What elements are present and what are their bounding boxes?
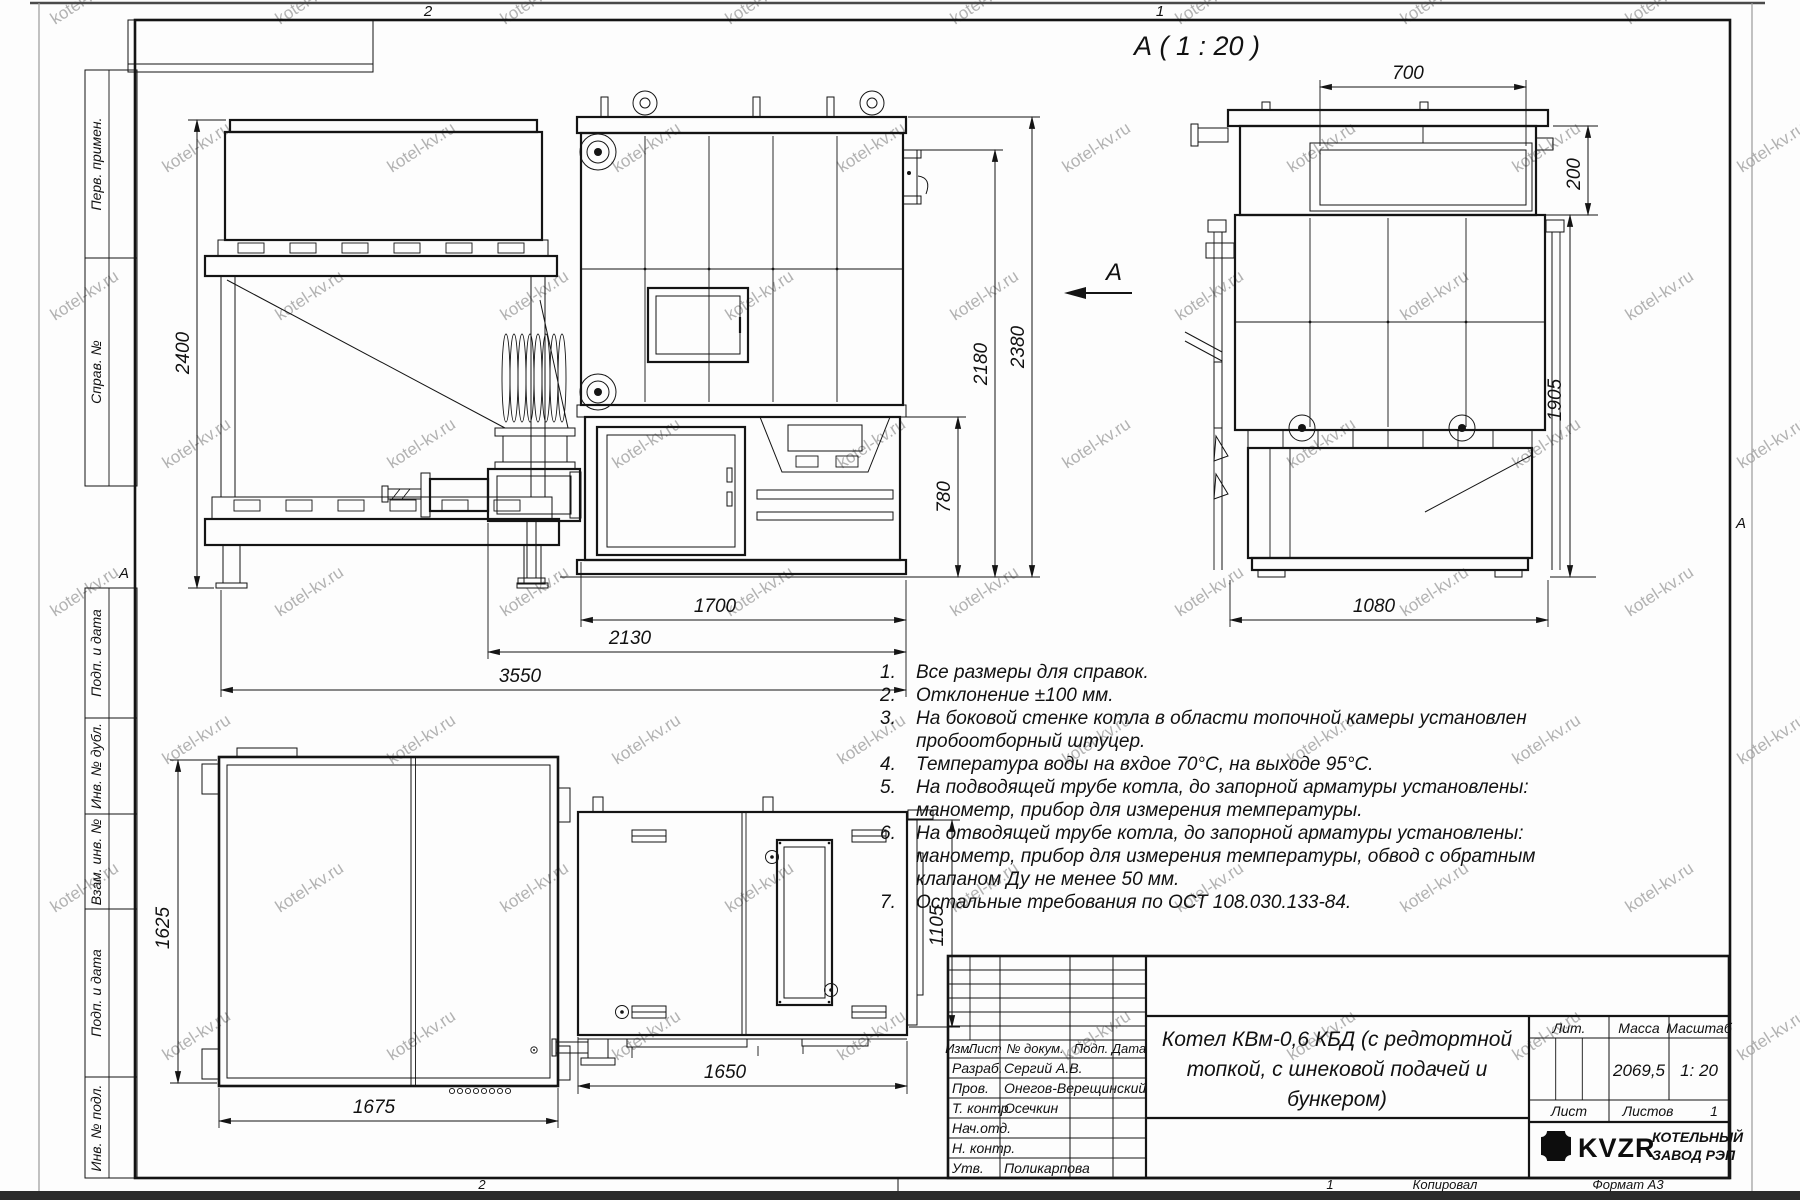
watermark	[1734, 118, 1800, 176]
zone-top-right: 1	[1156, 3, 1164, 20]
dim-700: 700	[1392, 63, 1424, 84]
tb-doc-title-line2: топкой, с шнековой подачей и	[1187, 1058, 1488, 1081]
dim-2380: 2380	[1008, 325, 1029, 369]
watermark	[609, 414, 684, 472]
tb-mass-label: Масса	[1618, 1020, 1660, 1036]
note-num: 3.	[880, 708, 896, 729]
watermark	[947, 0, 1022, 28]
watermark	[834, 710, 909, 768]
tb-sheets-label: Листов	[1622, 1103, 1674, 1119]
note-num: 1.	[880, 662, 896, 683]
sidebar-stamps: Перв. примен. Справ. № Подп. и дата Инв.…	[85, 70, 137, 1178]
sidebar-label-inv-podl: Инв. № подл.	[88, 1085, 104, 1172]
tb-role: Утв.	[951, 1160, 984, 1176]
watermark	[1397, 266, 1472, 324]
screw-feeder-drive	[382, 469, 581, 584]
watermark	[272, 562, 347, 620]
dim-1650: 1650	[704, 1062, 747, 1083]
watermark	[834, 118, 909, 176]
tb-header-data: Дата	[1110, 1041, 1146, 1056]
dim-780: 780	[934, 481, 955, 513]
tb-name: Сергий А.В.	[1004, 1060, 1083, 1076]
section-view-title: А ( 1 : 20 )	[1132, 31, 1260, 61]
dim-2130: 2130	[608, 628, 652, 649]
tb-role: Н. контр.	[952, 1140, 1015, 1156]
tb-sheet-label: Лист	[1550, 1103, 1587, 1119]
note-line: На подводящей трубе котла, до запорной а…	[916, 777, 1529, 798]
boiler-side-hatch	[648, 288, 748, 362]
watermark	[384, 118, 459, 176]
tb-name: Поликарпова	[1004, 1160, 1090, 1176]
dim-1675: 1675	[353, 1097, 396, 1118]
watermark	[722, 858, 797, 916]
firebox-door	[597, 427, 745, 555]
tb-header-doc: № докум.	[1006, 1041, 1063, 1056]
note-line: Все размеры для справок.	[916, 662, 1149, 683]
watermark	[497, 858, 572, 916]
front-view-bunker	[205, 120, 581, 588]
sidebar-label-perv-primen: Перв. примен.	[88, 117, 104, 210]
bolt-holes-row	[449, 1088, 510, 1093]
tb-mass-value: 2069,5	[1612, 1061, 1666, 1080]
tb-scale-value: 1: 20	[1680, 1061, 1718, 1080]
watermark	[1284, 414, 1359, 472]
watermark	[1172, 562, 1247, 620]
section-side-channels	[1208, 220, 1564, 570]
watermark	[609, 118, 684, 176]
watermark: kotel-kv.ru	[47, 0, 122, 28]
view-arrow-label: А	[1104, 259, 1122, 286]
watermark	[47, 562, 122, 620]
dim-1700: 1700	[694, 596, 737, 617]
tb-name: Онегов-Верещинский	[1004, 1080, 1146, 1096]
sidebar-label-podp-data-2: Подп. и дата	[88, 949, 104, 1037]
sidebar-label-sprav-no: Справ. №	[88, 340, 104, 404]
rear-door	[766, 840, 838, 1005]
watermark	[1622, 266, 1697, 324]
watermark	[1622, 0, 1697, 28]
dim-1625: 1625	[153, 906, 174, 949]
watermark	[159, 1006, 234, 1064]
pipe-flange-boss-upper	[580, 134, 616, 170]
note-line: манометр, прибор для измерения температу…	[916, 846, 1535, 867]
watermark	[384, 1006, 459, 1064]
watermark	[159, 118, 234, 176]
tb-header-list: Лист	[967, 1041, 1002, 1056]
zone-top-left: 2	[423, 3, 433, 20]
watermark	[1509, 414, 1584, 472]
tb-role: Пров.	[952, 1080, 989, 1096]
note-num: 6.	[880, 823, 896, 844]
watermark	[1622, 562, 1697, 620]
dim-1905: 1905	[1545, 378, 1566, 421]
note-line: манометр, прибор для измерения температу…	[916, 800, 1363, 821]
dim-3550: 3550	[499, 666, 542, 687]
note-line: клапаном Ду не менее 50 мм.	[916, 869, 1179, 890]
watermark	[497, 0, 572, 28]
dim-2180: 2180	[971, 342, 992, 386]
dim-2400: 2400	[173, 331, 194, 375]
watermark	[272, 858, 347, 916]
drawing-sheet: kotel-kv.ru	[0, 0, 1800, 1200]
watermark	[384, 710, 459, 768]
watermark	[1734, 414, 1800, 472]
side-bracket	[903, 150, 928, 204]
zone-side-left: А	[118, 565, 129, 582]
plan-view: 1625 1675	[153, 748, 570, 1128]
tb-scale-label: Масштаб	[1666, 1020, 1733, 1036]
tb-role: Разраб.	[952, 1060, 1003, 1076]
note-line: На боковой стенке котла в области топочн…	[916, 708, 1527, 729]
sidebar-label-podp-data-1: Подп. и дата	[88, 609, 104, 697]
watermark	[1397, 0, 1472, 28]
tb-header-podp: Подп.	[1074, 1041, 1109, 1056]
watermark	[1397, 858, 1472, 916]
note-line: пробоотборный штуцер.	[916, 731, 1145, 752]
note-num: 2.	[879, 685, 896, 706]
dim-1080: 1080	[1353, 596, 1396, 617]
tb-doc-title-line3: бункером)	[1287, 1088, 1387, 1111]
watermark	[722, 266, 797, 324]
title-block: Изм. Лист № докум. Подп. Дата Разраб. Се…	[945, 956, 1744, 1178]
brand-name-line1: КОТЕЛЬНЫЙ	[1652, 1128, 1744, 1145]
tb-lit-label: Лит.	[1552, 1020, 1586, 1036]
watermark	[1172, 0, 1247, 28]
watermark	[722, 0, 797, 28]
brand-name-line2: ЗАВОД РЭП	[1652, 1147, 1736, 1163]
view-direction-arrow: А	[1064, 259, 1132, 299]
sidebar-label-vzam-inv: Взам. инв. №	[88, 819, 104, 906]
sidebar-label-inv-dubl: Инв. № дубл.	[88, 723, 104, 809]
tb-sheets-value: 1	[1710, 1103, 1718, 1119]
watermark	[47, 266, 122, 324]
watermark	[497, 562, 572, 620]
note-line: Остальные требования по ОСТ 108.030.133-…	[916, 892, 1351, 913]
watermark	[1622, 858, 1697, 916]
note-num: 4.	[880, 754, 896, 775]
note-num: 7.	[880, 892, 896, 913]
zone-side-right: А	[1735, 515, 1746, 532]
watermark	[1734, 1006, 1800, 1064]
note-line: Температура воды на вхдое 70°С, на выход…	[916, 754, 1373, 775]
brand-logo-text: KVZR	[1578, 1133, 1656, 1163]
screw-spring-symbol	[502, 334, 566, 422]
note-num: 5.	[880, 777, 896, 798]
handles	[632, 830, 886, 1018]
brand-logo: KVZR КОТЕЛЬНЫЙ ЗАВОД РЭП	[1535, 1125, 1744, 1167]
dim-200: 200	[1564, 158, 1585, 191]
watermark	[47, 858, 122, 916]
tb-name: Осечкин	[1004, 1100, 1059, 1116]
watermark	[1059, 414, 1134, 472]
watermark	[1734, 710, 1800, 768]
watermark	[384, 414, 459, 472]
note-line: На отводящей трубе котла, до запорной ар…	[916, 823, 1524, 844]
watermark	[159, 414, 234, 472]
watermark	[947, 266, 1022, 324]
note-line: Отклонение ±100 мм.	[916, 685, 1114, 706]
tb-doc-title-line1: Котел КВм-0,6 КБД (с редтортной	[1162, 1028, 1513, 1051]
watermark	[609, 710, 684, 768]
watermark	[272, 0, 347, 28]
zone-bottom-left: 2	[477, 1177, 486, 1192]
tb-role: Нач.отд.	[952, 1120, 1011, 1136]
watermark	[1059, 118, 1134, 176]
